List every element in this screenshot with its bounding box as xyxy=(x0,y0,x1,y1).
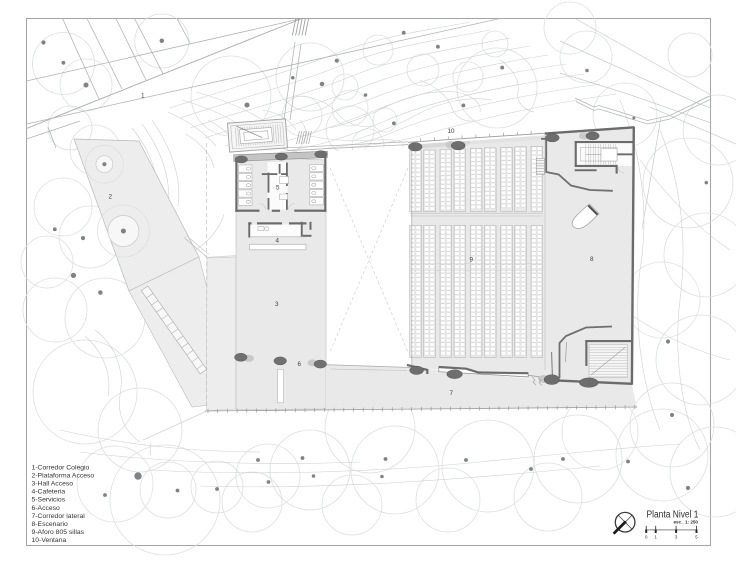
svg-text:3-Hall Acceso: 3-Hall Acceso xyxy=(32,481,74,488)
svg-text:1: 1 xyxy=(141,93,145,100)
svg-text:esc_ 1: 250: esc_ 1: 250 xyxy=(673,520,698,525)
svg-text:10-Ventana: 10-Ventana xyxy=(32,537,67,544)
svg-text:9: 9 xyxy=(470,257,474,264)
svg-text:8-Escenario: 8-Escenario xyxy=(32,521,68,528)
svg-text:3: 3 xyxy=(275,301,279,308)
svg-text:4-Cafeteria: 4-Cafeteria xyxy=(32,489,66,496)
svg-text:7-Corredor lateral: 7-Corredor lateral xyxy=(32,513,86,520)
svg-text:2: 2 xyxy=(109,194,113,201)
svg-text:1-Corredor Colegio: 1-Corredor Colegio xyxy=(32,464,90,471)
svg-text:4: 4 xyxy=(276,238,280,245)
svg-text:7: 7 xyxy=(450,390,454,397)
svg-text:10: 10 xyxy=(448,128,456,135)
svg-text:2-Plataforma Acceso: 2-Plataforma Acceso xyxy=(32,472,95,479)
svg-text:6-Acceso: 6-Acceso xyxy=(32,505,61,512)
svg-text:9-Aforo 805 sillas: 9-Aforo 805 sillas xyxy=(32,529,85,536)
svg-text:8: 8 xyxy=(590,256,594,263)
svg-text:5: 5 xyxy=(276,185,280,192)
svg-text:6: 6 xyxy=(298,361,302,368)
svg-text:5-Servicios: 5-Servicios xyxy=(32,497,66,504)
